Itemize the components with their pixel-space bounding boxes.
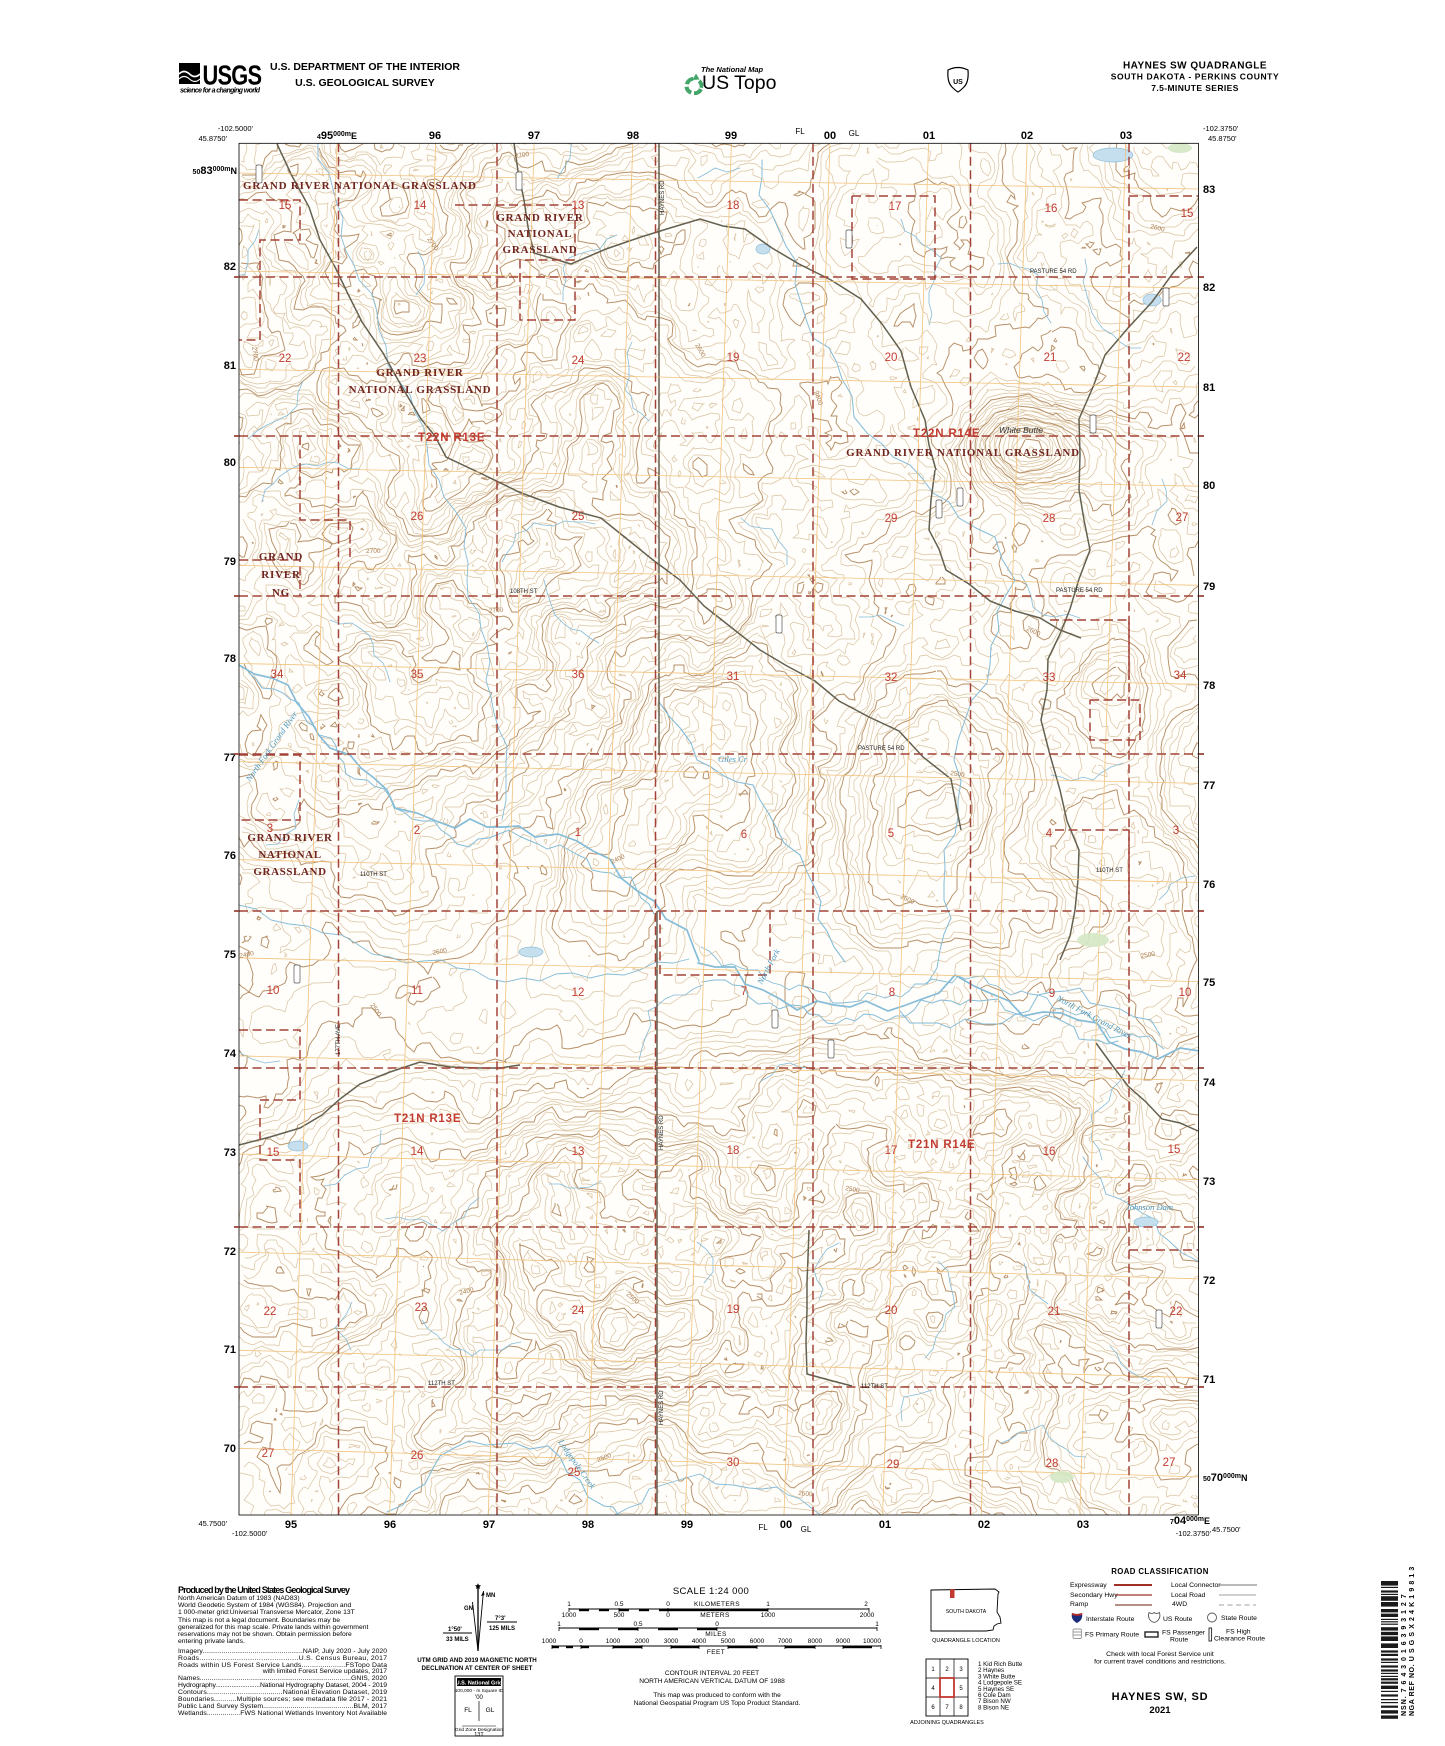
- svg-text:HAYNES RD: HAYNES RD: [659, 1115, 665, 1150]
- svg-text:Imagery.......................: Imagery.................................…: [178, 1648, 387, 1655]
- svg-text:45.7500': 45.7500': [1212, 1525, 1241, 1534]
- svg-text:GRAND RIVER: GRAND RIVER: [247, 832, 333, 844]
- svg-text:Johnson Dam: Johnson Dam: [1126, 1202, 1173, 1212]
- svg-text:T21N R13E: T21N R13E: [394, 1113, 461, 1125]
- svg-text:GRASSLAND: GRASSLAND: [253, 866, 326, 878]
- svg-text:177TH AVE: 177TH AVE: [336, 1024, 342, 1055]
- svg-text:T21N R14E: T21N R14E: [908, 1139, 975, 1151]
- svg-text:2000: 2000: [860, 1612, 875, 1619]
- svg-text:NATIONAL GRASSLAND: NATIONAL GRASSLAND: [349, 384, 492, 396]
- svg-text:Local Connector: Local Connector: [1171, 1582, 1221, 1589]
- svg-text:ADJOINING QUADRANGLES: ADJOINING QUADRANGLES: [910, 1720, 984, 1726]
- svg-text:98: 98: [627, 130, 639, 142]
- svg-text:1000: 1000: [606, 1638, 621, 1645]
- svg-text:9: 9: [1049, 988, 1055, 1000]
- svg-text:reservations may not be shown.: reservations may not be shown. Obtain pe…: [178, 1631, 352, 1638]
- svg-text:This map was produced to confo: This map was produced to conform with th…: [653, 1692, 781, 1699]
- svg-text:26: 26: [411, 511, 424, 523]
- svg-text:80: 80: [1203, 480, 1215, 492]
- svg-text:10: 10: [267, 985, 280, 997]
- svg-text:science for a changing world: science for a changing world: [180, 88, 261, 95]
- svg-text:U.S. GEOLOGICAL SURVEY: U.S. GEOLOGICAL SURVEY: [295, 77, 435, 89]
- svg-text:MN: MN: [486, 1593, 495, 1599]
- svg-text:45.8750': 45.8750': [198, 134, 227, 143]
- svg-text:98: 98: [582, 1519, 594, 1531]
- svg-text:71: 71: [224, 1344, 236, 1356]
- svg-text:82: 82: [1203, 282, 1215, 294]
- svg-text:1°50': 1°50': [448, 1627, 462, 1633]
- svg-text:73: 73: [224, 1147, 236, 1159]
- svg-text:5000: 5000: [721, 1638, 736, 1645]
- svg-text:500: 500: [614, 1612, 625, 1619]
- svg-text:FS Primary Route: FS Primary Route: [1085, 1632, 1139, 1639]
- svg-text:Check with local Forest Servic: Check with local Forest Service unit: [1106, 1651, 1214, 1658]
- svg-text:16: 16: [1043, 1146, 1056, 1158]
- svg-text:2700: 2700: [366, 548, 381, 555]
- svg-text:45.8750': 45.8750': [1208, 134, 1237, 143]
- svg-text:2: 2: [414, 825, 420, 837]
- svg-text:with limited Forest Service up: with limited Forest Service updates, 201…: [262, 1668, 388, 1675]
- svg-text:81: 81: [1203, 382, 1215, 394]
- svg-text:75: 75: [224, 949, 236, 961]
- svg-text:SOUTH DAKOTA: SOUTH DAKOTA: [946, 1609, 987, 1615]
- svg-text:19: 19: [727, 1304, 740, 1316]
- svg-text:-102.5000': -102.5000': [232, 1529, 268, 1538]
- svg-text:34: 34: [1174, 670, 1187, 682]
- svg-text:4: 4: [1046, 828, 1053, 840]
- svg-text:10: 10: [1179, 987, 1192, 999]
- svg-text:79: 79: [224, 556, 236, 568]
- svg-text:19: 19: [727, 352, 740, 364]
- svg-text:generalized for this map scale: generalized for this map scale. Private …: [178, 1624, 369, 1631]
- svg-text:US Route: US Route: [1163, 1616, 1193, 1623]
- svg-text:DECLINATION AT CENTER OF SHEET: DECLINATION AT CENTER OF SHEET: [422, 1665, 533, 1672]
- svg-text:10000: 10000: [863, 1638, 881, 1645]
- svg-text:35: 35: [411, 669, 424, 681]
- svg-text:2: 2: [864, 1601, 868, 1608]
- svg-text:NATIONAL: NATIONAL: [508, 228, 573, 240]
- svg-text:13: 13: [572, 200, 585, 212]
- svg-text:00: 00: [780, 1519, 792, 1531]
- svg-text:5: 5: [888, 828, 894, 840]
- svg-text:7: 7: [741, 986, 747, 998]
- svg-text:1000: 1000: [562, 1612, 577, 1619]
- svg-text:GRAND RIVER NATIONAL GRASSLAND: GRAND RIVER NATIONAL GRASSLAND: [243, 180, 477, 192]
- svg-text:for current travel conditions: for current travel conditions and restri…: [1094, 1659, 1226, 1666]
- svg-text:PASTURE 54 RD: PASTURE 54 RD: [1030, 269, 1077, 275]
- svg-text:8: 8: [889, 987, 895, 999]
- svg-text:70: 70: [224, 1443, 236, 1455]
- svg-text:72: 72: [1203, 1275, 1215, 1287]
- svg-text:Interstate Route: Interstate Route: [1086, 1616, 1135, 1623]
- svg-text:108TH ST: 108TH ST: [510, 589, 538, 595]
- svg-text:HAYNES RD: HAYNES RD: [660, 180, 666, 215]
- svg-text:U.S. National Grid: U.S. National Grid: [456, 1681, 503, 1687]
- svg-text:SOUTH DAKOTA - PERKINS COUNTY: SOUTH DAKOTA - PERKINS COUNTY: [1111, 72, 1280, 82]
- svg-text:76: 76: [224, 850, 236, 862]
- svg-text:6: 6: [741, 829, 747, 841]
- svg-text:78: 78: [224, 653, 236, 665]
- svg-text:15: 15: [1168, 1144, 1181, 1156]
- svg-text:'00: '00: [475, 1695, 483, 1701]
- svg-text:8000: 8000: [808, 1638, 823, 1645]
- svg-text:17: 17: [889, 201, 902, 213]
- svg-text:This map is not a legal docume: This map is not a legal document. Bounda…: [178, 1617, 340, 1624]
- svg-text:0.5: 0.5: [633, 1621, 642, 1628]
- svg-text:9000: 9000: [836, 1638, 851, 1645]
- svg-text:24: 24: [572, 355, 585, 367]
- svg-text:77: 77: [1203, 780, 1215, 792]
- svg-text:Ramp: Ramp: [1070, 1601, 1088, 1608]
- svg-text:0: 0: [666, 1612, 670, 1619]
- svg-text:45.7500': 45.7500': [198, 1519, 227, 1528]
- svg-text:100,000 - m Square ID: 100,000 - m Square ID: [455, 1688, 504, 1694]
- svg-text:3000: 3000: [664, 1638, 679, 1645]
- svg-text:29: 29: [887, 1459, 900, 1471]
- svg-text:FS High: FS High: [1226, 1629, 1251, 1636]
- svg-text:Produced by the United States: Produced by the United States Geological…: [178, 1585, 350, 1595]
- svg-text:30: 30: [727, 1457, 740, 1469]
- svg-text:25: 25: [572, 511, 585, 523]
- svg-text:27: 27: [1176, 512, 1189, 524]
- svg-text:22: 22: [264, 1306, 277, 1318]
- svg-text:23: 23: [414, 353, 427, 365]
- svg-text:112TH ST: 112TH ST: [861, 1384, 888, 1390]
- svg-text:USGS: USGS: [203, 60, 262, 91]
- svg-text:74: 74: [224, 1048, 237, 1060]
- svg-text:4000: 4000: [692, 1638, 707, 1645]
- svg-text:Public Land Survey System..: Public Land Survey System...............…: [178, 1703, 387, 1710]
- svg-text:entering private lands.: entering private lands.: [178, 1638, 245, 1645]
- svg-text:96: 96: [429, 130, 441, 142]
- svg-text:US: US: [953, 79, 963, 86]
- svg-text:Expressway: Expressway: [1070, 1582, 1107, 1589]
- svg-text:National Geospatial Program US: National Geospatial Program US Topo Prod…: [634, 1700, 801, 1707]
- svg-text:SCALE 1:24 000: SCALE 1:24 000: [673, 1586, 749, 1597]
- svg-text:HAYNES RD: HAYNES RD: [659, 1390, 665, 1425]
- svg-text:Wetlands.................FWS: Wetlands.................FWS National We…: [178, 1710, 387, 1717]
- svg-text:North American Datum of 1983 (: North American Datum of 1983 (NAD83): [178, 1595, 300, 1602]
- svg-text:81: 81: [224, 360, 236, 372]
- svg-text:Roads.........................: Roads...................................…: [178, 1655, 387, 1662]
- svg-text:112TH ST: 112TH ST: [428, 1381, 455, 1387]
- svg-text:22: 22: [1178, 352, 1191, 364]
- svg-text:33 MILS: 33 MILS: [446, 1637, 469, 1643]
- svg-text:0: 0: [715, 1621, 719, 1628]
- svg-text:GRAND RIVER NATIONAL GRASSLAND: GRAND RIVER NATIONAL GRASSLAND: [846, 447, 1080, 459]
- svg-text:World Geodetic System of 1984: World Geodetic System of 1984 (WGS84). P…: [178, 1602, 351, 1609]
- svg-text:29: 29: [885, 513, 898, 525]
- svg-text:MILES: MILES: [705, 1631, 727, 1638]
- svg-text:1: 1: [766, 1601, 770, 1608]
- svg-text:80: 80: [224, 457, 236, 469]
- svg-text:22: 22: [279, 353, 292, 365]
- svg-text:NATIONAL: NATIONAL: [258, 849, 321, 861]
- svg-text:02: 02: [1021, 130, 1033, 142]
- svg-text:1000: 1000: [761, 1612, 776, 1619]
- svg-text:HAYNES SW, SD: HAYNES SW, SD: [1112, 1691, 1209, 1703]
- svg-text:03: 03: [1120, 130, 1132, 142]
- svg-text:-102.5000': -102.5000': [218, 124, 254, 133]
- svg-text:GL: GL: [486, 1707, 495, 1714]
- svg-text:11: 11: [411, 985, 423, 997]
- svg-text:1: 1: [557, 1621, 561, 1628]
- svg-text:32: 32: [885, 672, 898, 684]
- svg-text:White Butte: White Butte: [999, 425, 1043, 435]
- svg-text:21: 21: [1044, 352, 1057, 364]
- svg-text:72: 72: [224, 1246, 236, 1258]
- svg-text:13: 13: [572, 1146, 585, 1158]
- svg-text:1: 1: [575, 827, 581, 839]
- svg-text:RIVER: RIVER: [261, 569, 301, 581]
- svg-text:83: 83: [1203, 184, 1215, 196]
- svg-text:6000: 6000: [750, 1638, 765, 1645]
- svg-text:NSN. 7 6 4 3 0 1 6 3 9 3 1 2: NSN. 7 6 4 3 0 1 6 3 9 3 1 2 7: [1401, 1593, 1408, 1716]
- svg-text:14: 14: [414, 200, 427, 212]
- svg-text:110TH ST: 110TH ST: [1096, 868, 1123, 874]
- svg-text:2700: 2700: [489, 607, 504, 615]
- svg-text:01: 01: [923, 130, 935, 142]
- svg-text:QUADRANGLE LOCATION: QUADRANGLE LOCATION: [932, 1638, 1000, 1644]
- svg-text:20: 20: [885, 1305, 898, 1317]
- svg-text:96: 96: [384, 1519, 396, 1531]
- svg-text:Route: Route: [1170, 1637, 1188, 1644]
- svg-text:1: 1: [875, 1621, 879, 1628]
- svg-text:26: 26: [411, 1450, 424, 1462]
- svg-text:Giles Cr: Giles Cr: [718, 754, 748, 764]
- svg-text:13T: 13T: [474, 1732, 484, 1738]
- svg-text:23: 23: [415, 1302, 428, 1314]
- svg-text:75: 75: [1203, 977, 1215, 989]
- svg-text:FL: FL: [758, 1523, 768, 1532]
- svg-text:UTM GRID AND 2019 MAGNETIC NOR: UTM GRID AND 2019 MAGNETIC NORTH: [417, 1657, 537, 1664]
- svg-text:GRAND RIVER: GRAND RIVER: [496, 212, 584, 224]
- svg-text:Hydrography...................: Hydrography.........................Nati…: [178, 1682, 387, 1689]
- svg-text:14: 14: [411, 1146, 424, 1158]
- svg-text:27: 27: [1163, 1457, 1176, 1469]
- svg-text:FS Passenger: FS Passenger: [1162, 1630, 1206, 1637]
- svg-text:7.5-MINUTE SERIES: 7.5-MINUTE SERIES: [1151, 83, 1239, 93]
- svg-text:Local Road: Local Road: [1171, 1592, 1206, 1599]
- svg-text:24: 24: [572, 1305, 585, 1317]
- svg-text:Names.........................: Names...................................…: [178, 1675, 387, 1682]
- svg-text:FEET: FEET: [707, 1649, 725, 1656]
- svg-text:27: 27: [262, 1448, 275, 1460]
- svg-text:71: 71: [1203, 1374, 1215, 1386]
- svg-text:8 Bison NE: 8 Bison NE: [978, 1704, 1009, 1711]
- svg-text:T22N R13E: T22N R13E: [418, 432, 485, 444]
- svg-text:ROAD CLASSIFICATION: ROAD CLASSIFICATION: [1111, 1567, 1209, 1576]
- svg-text:12: 12: [572, 987, 585, 999]
- svg-text:0: 0: [666, 1601, 670, 1608]
- svg-text:GRAND RIVER: GRAND RIVER: [376, 367, 464, 379]
- svg-text:2500: 2500: [798, 1490, 813, 1498]
- svg-text:PASTURE 54 RD: PASTURE 54 RD: [858, 746, 905, 752]
- svg-text:-102.3750': -102.3750': [1203, 124, 1239, 133]
- svg-text:36: 36: [572, 669, 585, 681]
- svg-text:110TH ST: 110TH ST: [360, 872, 387, 878]
- svg-text:GL: GL: [849, 129, 860, 138]
- svg-text:97: 97: [483, 1519, 495, 1531]
- svg-text:GRASSLAND: GRASSLAND: [502, 244, 577, 256]
- svg-text:99: 99: [725, 130, 737, 142]
- svg-text:18: 18: [727, 200, 740, 212]
- svg-text:76: 76: [1203, 879, 1215, 891]
- svg-text:15: 15: [1181, 208, 1194, 220]
- svg-text:20: 20: [885, 352, 898, 364]
- svg-text:28: 28: [1046, 1458, 1059, 1470]
- svg-text:T22N R14E: T22N R14E: [913, 428, 980, 440]
- svg-text:1000: 1000: [542, 1638, 557, 1645]
- svg-text:U.S. DEPARTMENT OF THE INTERIO: U.S. DEPARTMENT OF THE INTERIOR: [270, 61, 460, 73]
- svg-text:33: 33: [1043, 672, 1056, 684]
- svg-text:79: 79: [1203, 581, 1215, 593]
- svg-text:31: 31: [727, 671, 740, 683]
- svg-text:7°3': 7°3': [495, 1616, 506, 1622]
- svg-text:16: 16: [1045, 203, 1058, 215]
- svg-text:HAYNES SW QUADRANGLE: HAYNES SW QUADRANGLE: [1123, 61, 1267, 72]
- svg-text:US Topo: US Topo: [702, 72, 777, 94]
- svg-text:78: 78: [1203, 680, 1215, 692]
- svg-text:State Route: State Route: [1221, 1615, 1257, 1622]
- svg-text:95: 95: [285, 1519, 297, 1531]
- svg-text:0: 0: [579, 1638, 583, 1645]
- svg-text:CONTOUR INTERVAL 20 FEET: CONTOUR INTERVAL 20 FEET: [665, 1670, 759, 1677]
- svg-text:99: 99: [681, 1519, 693, 1531]
- svg-text:Clearance Route: Clearance Route: [1214, 1636, 1265, 1643]
- svg-text:2021: 2021: [1149, 1705, 1171, 1716]
- svg-text:PASTURE 54 RD: PASTURE 54 RD: [1056, 588, 1103, 594]
- svg-text:1 000-meter grid:Universal Tra: 1 000-meter grid:Universal Transverse Me…: [178, 1609, 355, 1616]
- svg-text:17: 17: [885, 1145, 898, 1157]
- svg-text:GRAND: GRAND: [259, 551, 303, 563]
- svg-text:34: 34: [271, 669, 284, 681]
- svg-text:22: 22: [1170, 1306, 1183, 1318]
- svg-text:Secondary Hwy: Secondary Hwy: [1070, 1592, 1118, 1599]
- svg-text:NGA REF NO. U S G S X 2 4 K 1: NGA REF NO. U S G S X 2 4 K 1 9 8 1 3: [1409, 1566, 1416, 1716]
- svg-text:15: 15: [279, 200, 292, 212]
- svg-text:73: 73: [1203, 1176, 1215, 1188]
- svg-text:02: 02: [978, 1519, 990, 1531]
- svg-text:97: 97: [528, 130, 540, 142]
- svg-text:7000: 7000: [778, 1638, 793, 1645]
- svg-text:Contours......................: Contours................................…: [178, 1689, 387, 1696]
- svg-text:NG: NG: [272, 587, 290, 599]
- svg-text:82: 82: [224, 261, 236, 273]
- svg-text:21: 21: [1048, 1306, 1061, 1318]
- svg-text:GN: GN: [464, 1606, 473, 1612]
- svg-text:GL: GL: [801, 1525, 812, 1534]
- svg-text:1: 1: [567, 1601, 571, 1608]
- svg-text:01: 01: [879, 1519, 891, 1531]
- svg-text:METERS: METERS: [700, 1612, 730, 1619]
- svg-text:Boundaries...........Multiple: Boundaries...........Multiple sources; s…: [178, 1696, 387, 1703]
- svg-text:03: 03: [1077, 1519, 1089, 1531]
- svg-text:KILOMETERS: KILOMETERS: [694, 1601, 740, 1608]
- svg-text:FL: FL: [464, 1707, 472, 1714]
- svg-text:74: 74: [1203, 1077, 1216, 1089]
- svg-text:125 MILS: 125 MILS: [489, 1626, 515, 1632]
- svg-text:18: 18: [727, 1145, 740, 1157]
- svg-text:NORTH AMERICAN VERTICAL DATUM: NORTH AMERICAN VERTICAL DATUM OF 1988: [639, 1678, 785, 1685]
- svg-text:4WD: 4WD: [1172, 1601, 1187, 1608]
- svg-text:28: 28: [1043, 513, 1056, 525]
- svg-text:0.5: 0.5: [614, 1601, 623, 1608]
- svg-text:-102.3750': -102.3750': [1176, 1529, 1212, 1538]
- svg-text:00: 00: [824, 130, 836, 142]
- svg-text:FL: FL: [795, 127, 805, 136]
- svg-text:3: 3: [1173, 825, 1179, 837]
- svg-text:15: 15: [267, 1147, 280, 1159]
- svg-text:2000: 2000: [635, 1638, 650, 1645]
